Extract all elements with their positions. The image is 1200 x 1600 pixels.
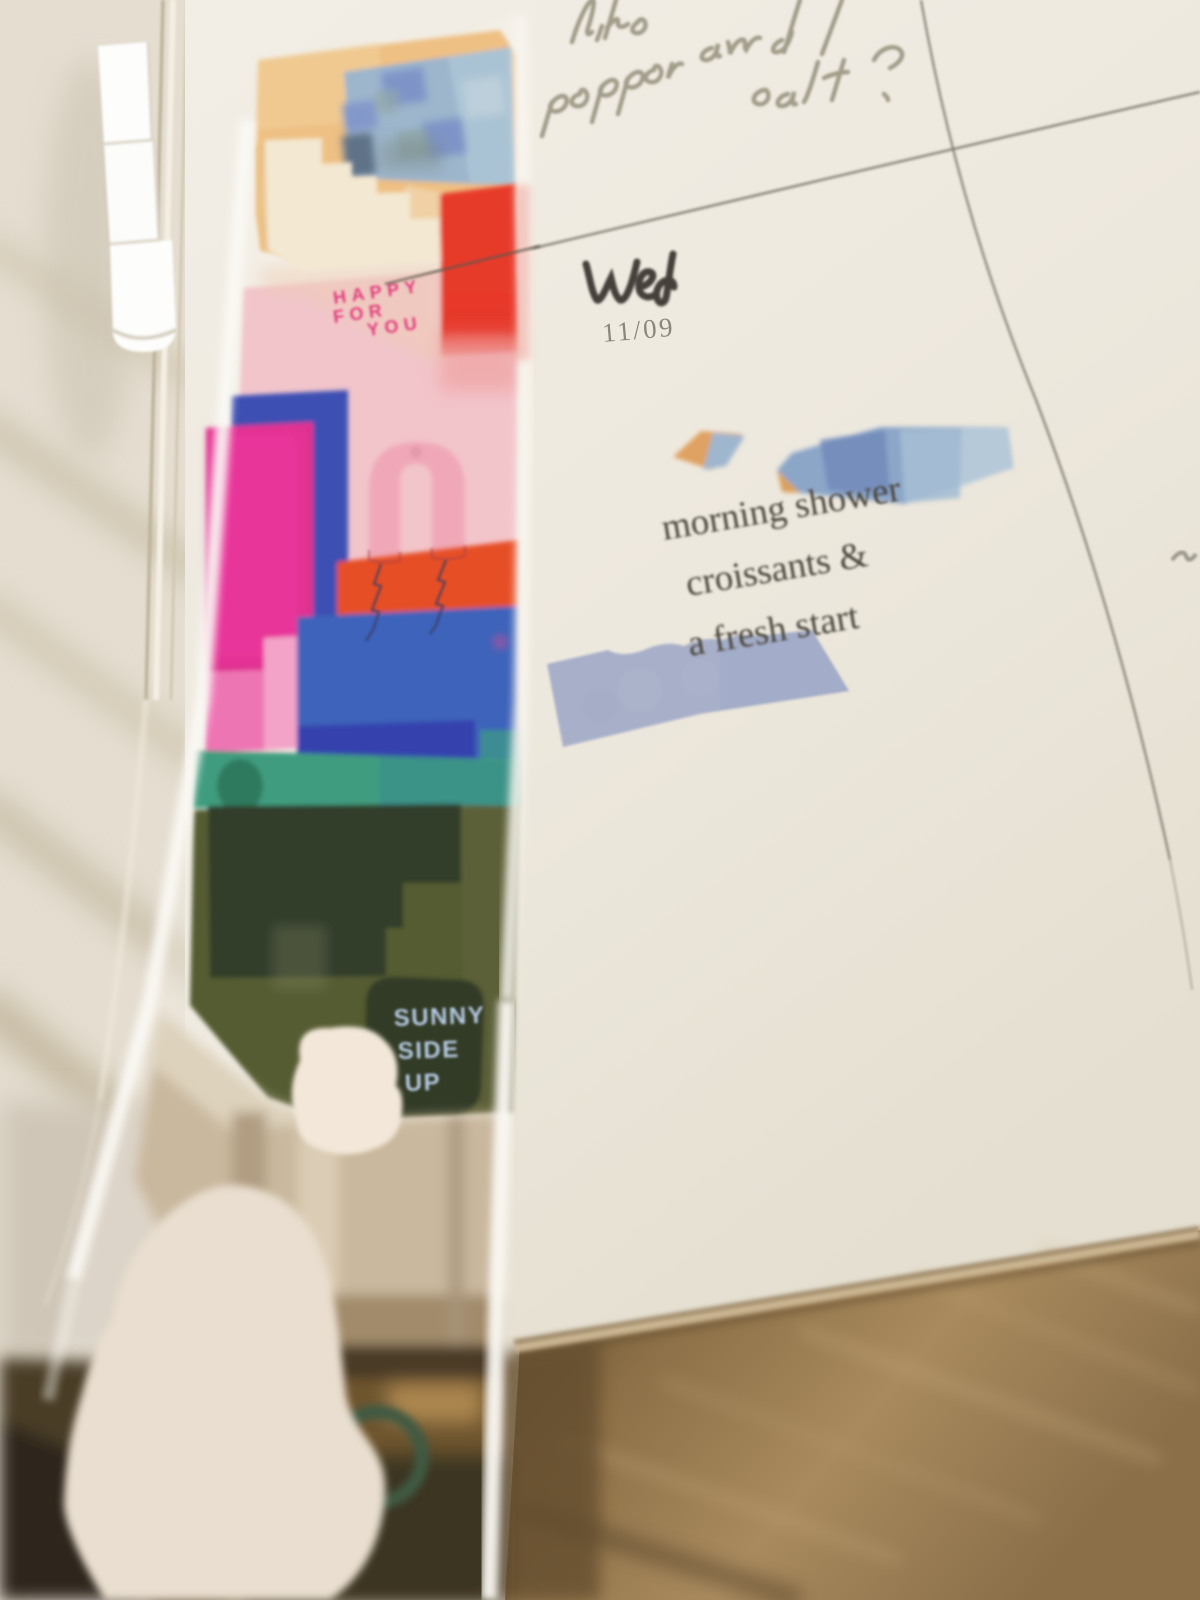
svg-text:SUNNY: SUNNY xyxy=(393,1002,485,1032)
svg-text:SIDE: SIDE xyxy=(397,1036,460,1065)
svg-text:11/09: 11/09 xyxy=(601,312,676,348)
svg-text:UP: UP xyxy=(404,1069,441,1097)
